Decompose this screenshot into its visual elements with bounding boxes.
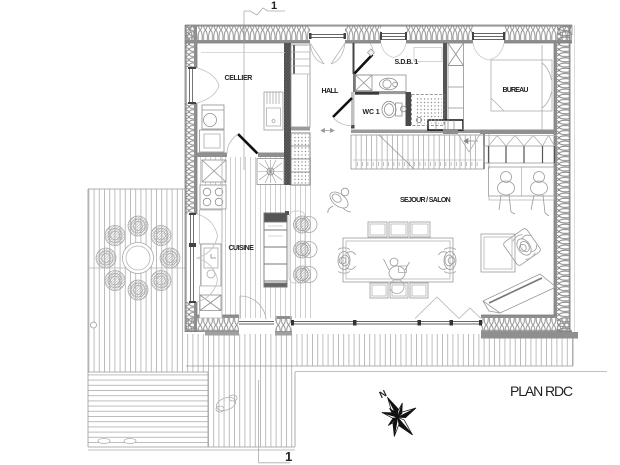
- svg-text:WC 1: WC 1: [363, 109, 380, 116]
- svg-text:CELLIER: CELLIER: [225, 75, 253, 82]
- svg-text:S.D.B. 1: S.D.B. 1: [395, 59, 419, 66]
- svg-text:PLAN RDC: PLAN RDC: [510, 383, 573, 399]
- svg-text:BUREAU: BUREAU: [503, 87, 529, 94]
- svg-text:1: 1: [285, 449, 292, 464]
- svg-text:SEJOUR / SALON: SEJOUR / SALON: [400, 197, 451, 204]
- svg-text:CUISINE: CUISINE: [229, 245, 255, 252]
- svg-text:1: 1: [271, 0, 277, 12]
- svg-text:HALL: HALL: [322, 88, 340, 95]
